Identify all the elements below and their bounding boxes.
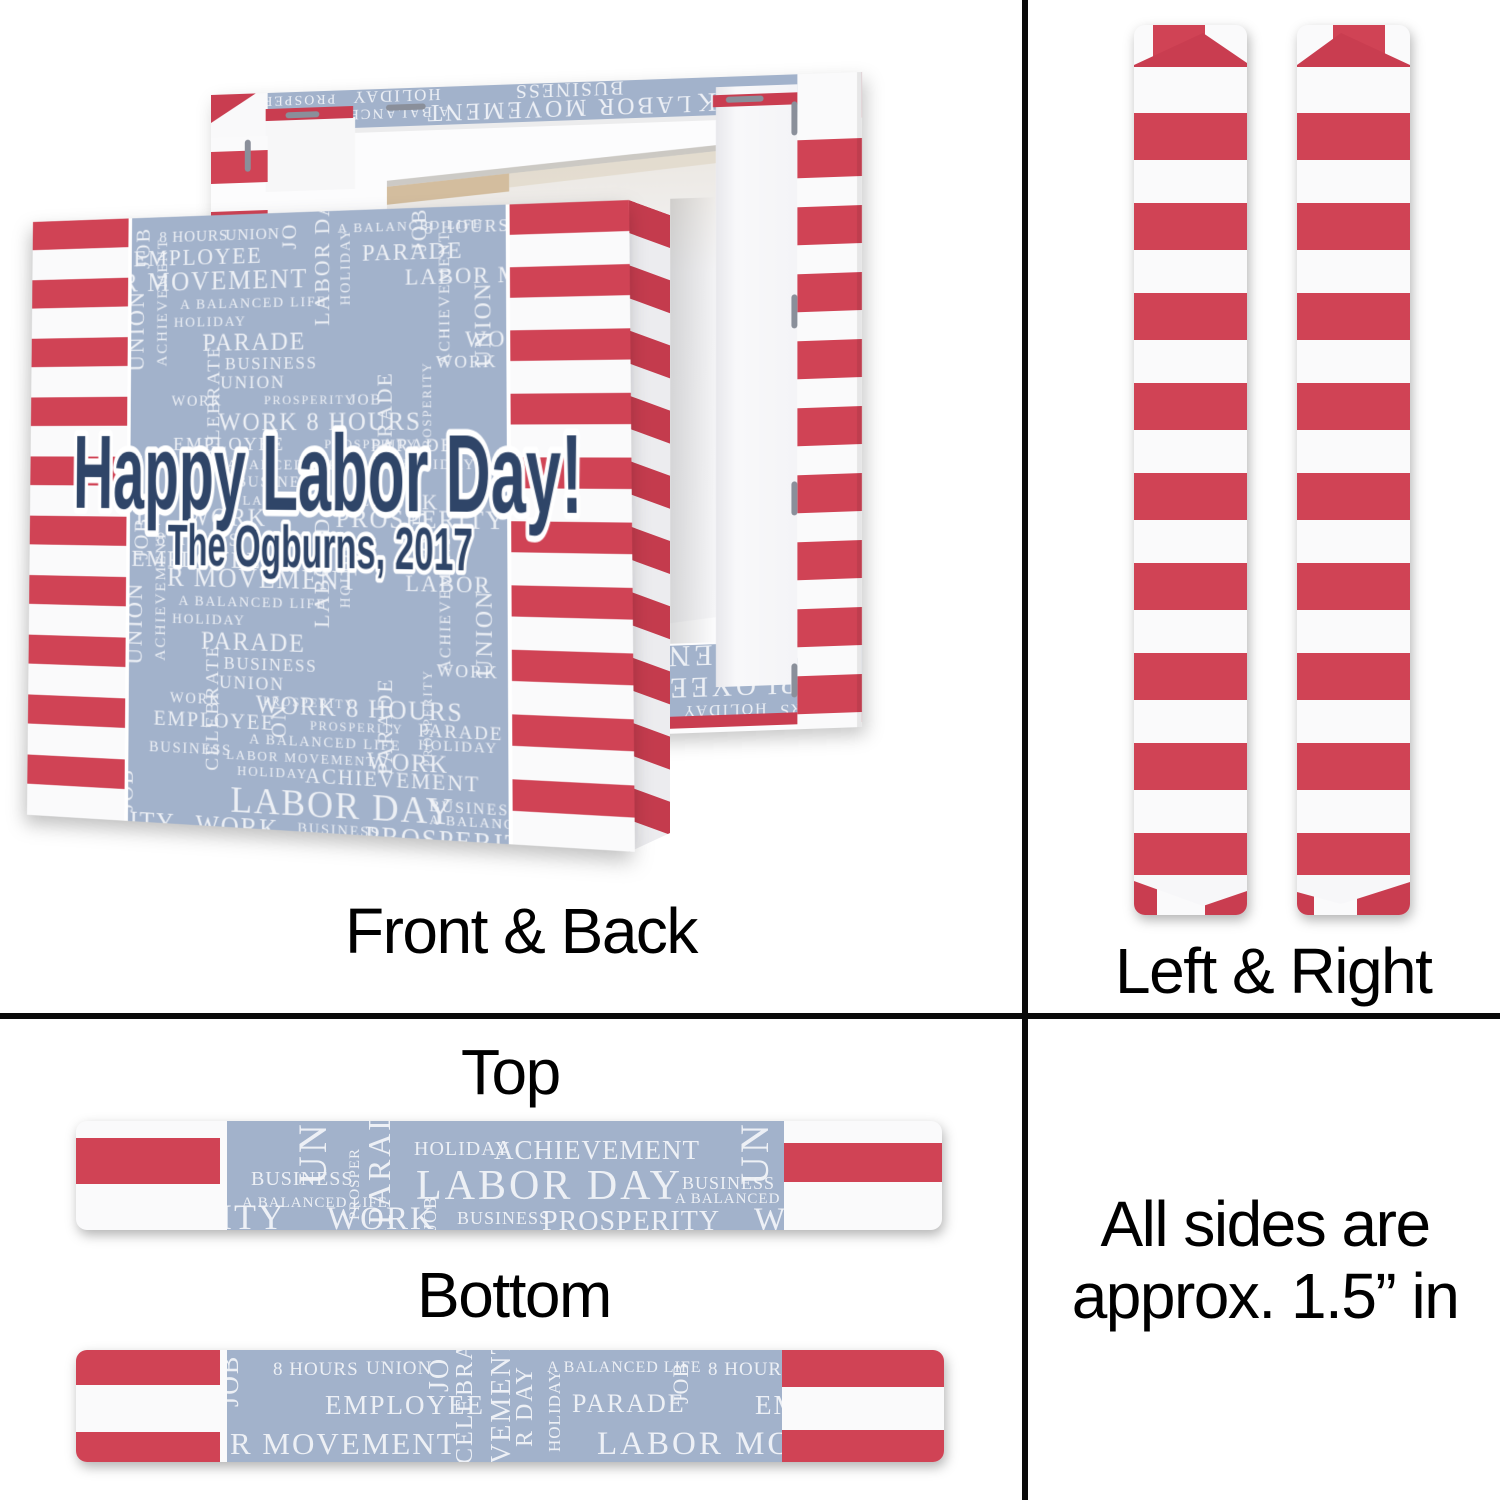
svg-text:LABOR MO: LABOR MO bbox=[597, 1426, 794, 1462]
svg-text:HOLIDAY: HOLIDAY bbox=[172, 610, 246, 629]
svg-text:PARADE: PARADE bbox=[362, 237, 464, 267]
svg-text:ITY: ITY bbox=[220, 1197, 286, 1230]
svg-text:HOLIDAY: HOLIDAY bbox=[174, 313, 247, 331]
svg-text:PARADE: PARADE bbox=[572, 1389, 686, 1418]
svg-text:HOLIDAY: HOLIDAY bbox=[337, 228, 353, 306]
svg-text:W: W bbox=[754, 1202, 787, 1230]
svg-text:UNION: UNION bbox=[220, 371, 285, 392]
svg-text:BUSINESS: BUSINESS bbox=[251, 1168, 353, 1190]
svg-text:UNION: UNION bbox=[366, 1358, 432, 1379]
svg-text:JO: JO bbox=[424, 1357, 455, 1392]
svg-text:EMPLOYEE: EMPLOYEE bbox=[325, 1390, 485, 1420]
svg-text:The Ogburns, 2017: The Ogburns, 2017 bbox=[168, 514, 474, 584]
svg-text:PARADE: PARADE bbox=[201, 627, 306, 658]
svg-text:ACHIEVEMENT: ACHIEVEMENT bbox=[153, 530, 169, 661]
svg-text:JOB: JOB bbox=[350, 392, 383, 409]
svg-text:JO: JO bbox=[279, 222, 301, 250]
svg-text:BUSINESS: BUSINESS bbox=[457, 1208, 550, 1228]
svg-text:8 HOURS: 8 HOURS bbox=[424, 216, 510, 238]
svg-text:R DAY: R DAY bbox=[512, 1365, 538, 1447]
svg-text:R MOVEMENT: R MOVEMENT bbox=[230, 1426, 458, 1461]
svg-text:BUSINESS: BUSINESS bbox=[682, 1173, 775, 1193]
svg-text:PROSPERITY: PROSPERITY bbox=[264, 394, 355, 408]
svg-text:8 HOURS: 8 HOURS bbox=[273, 1359, 359, 1380]
svg-text:ITY: ITY bbox=[130, 807, 176, 838]
svg-text:PROSPERITY: PROSPERITY bbox=[542, 1206, 720, 1230]
svg-text:WORK: WORK bbox=[172, 394, 223, 411]
svg-text:PARADE: PARADE bbox=[202, 327, 306, 356]
svg-text:WORK: WORK bbox=[170, 690, 222, 709]
svg-text:WORK: WORK bbox=[437, 661, 499, 683]
svg-text:HOLIDAY: HOLIDAY bbox=[545, 1369, 564, 1452]
svg-text:A BALANCED LIFE: A BALANCED LIFE bbox=[180, 293, 327, 313]
svg-text:JOB: JOB bbox=[420, 1196, 440, 1230]
svg-text:8 HOURS: 8 HOURS bbox=[708, 1359, 794, 1380]
svg-text:WORK: WORK bbox=[195, 811, 279, 845]
svg-text:ACHIEVEMENT: ACHIEVEMENT bbox=[494, 1135, 700, 1165]
svg-text:BUSINESS: BUSINESS bbox=[514, 76, 624, 102]
svg-text:LABOR DAY: LABOR DAY bbox=[416, 1163, 683, 1209]
svg-text:WO: WO bbox=[465, 327, 507, 352]
svg-text:WORK: WORK bbox=[436, 352, 498, 372]
